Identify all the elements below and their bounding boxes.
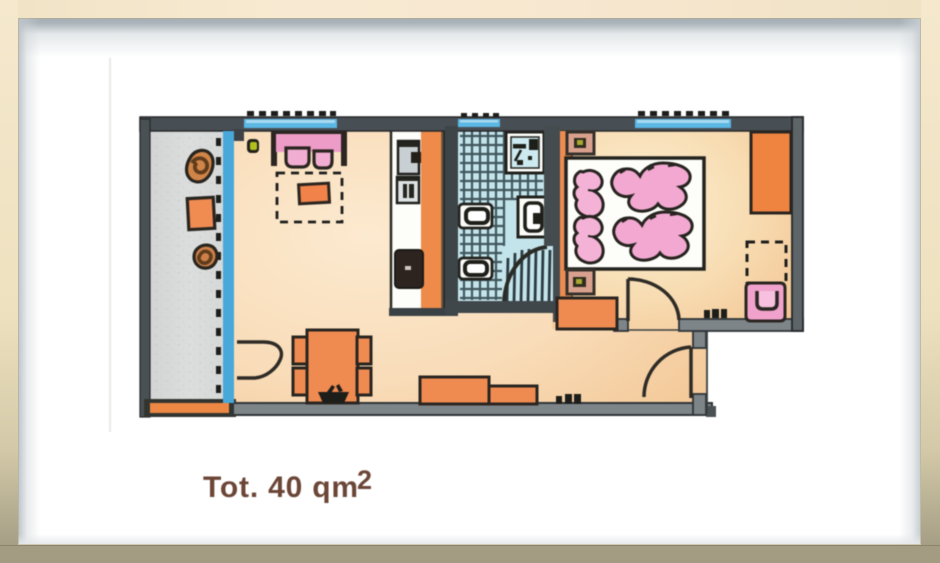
svg-text:Tot. 40 qm: Tot. 40 qm (203, 471, 359, 504)
svg-text:2: 2 (357, 465, 372, 495)
